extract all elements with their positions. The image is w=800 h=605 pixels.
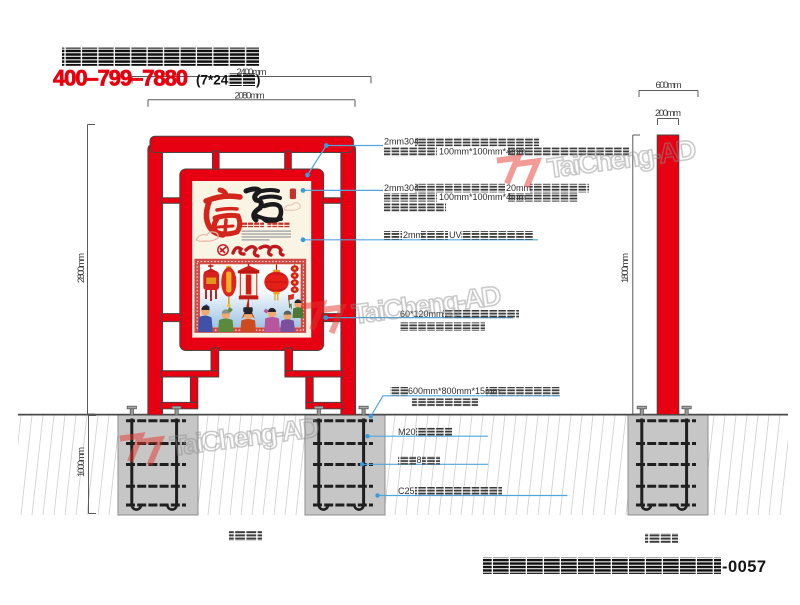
svg-text:TaiCheng-AD: TaiCheng-AD xyxy=(350,280,503,330)
svg-text:M20: M20 xyxy=(398,427,416,437)
svg-text:2080mm: 2080mm xyxy=(235,90,265,101)
svg-text:): ) xyxy=(256,73,261,88)
svg-text:2mm304: 2mm304 xyxy=(384,183,419,193)
svg-text:C25: C25 xyxy=(398,486,415,496)
svg-text:2mm: 2mm xyxy=(403,230,423,240)
svg-text:2mm304: 2mm304 xyxy=(384,137,419,147)
svg-text:2800mm: 2800mm xyxy=(76,253,87,283)
svg-text:8: 8 xyxy=(417,455,422,465)
svg-text:(7*24: (7*24 xyxy=(196,73,229,88)
svg-text:200mm: 200mm xyxy=(655,108,681,119)
svg-text:1000mm: 1000mm xyxy=(76,447,87,477)
svg-text:-0057: -0057 xyxy=(722,558,766,576)
svg-text:1800mm: 1800mm xyxy=(620,253,631,283)
svg-text:600mm: 600mm xyxy=(656,80,682,91)
svg-text:UV: UV xyxy=(449,230,462,240)
svg-text:400–799–7880: 400–799–7880 xyxy=(53,66,188,91)
